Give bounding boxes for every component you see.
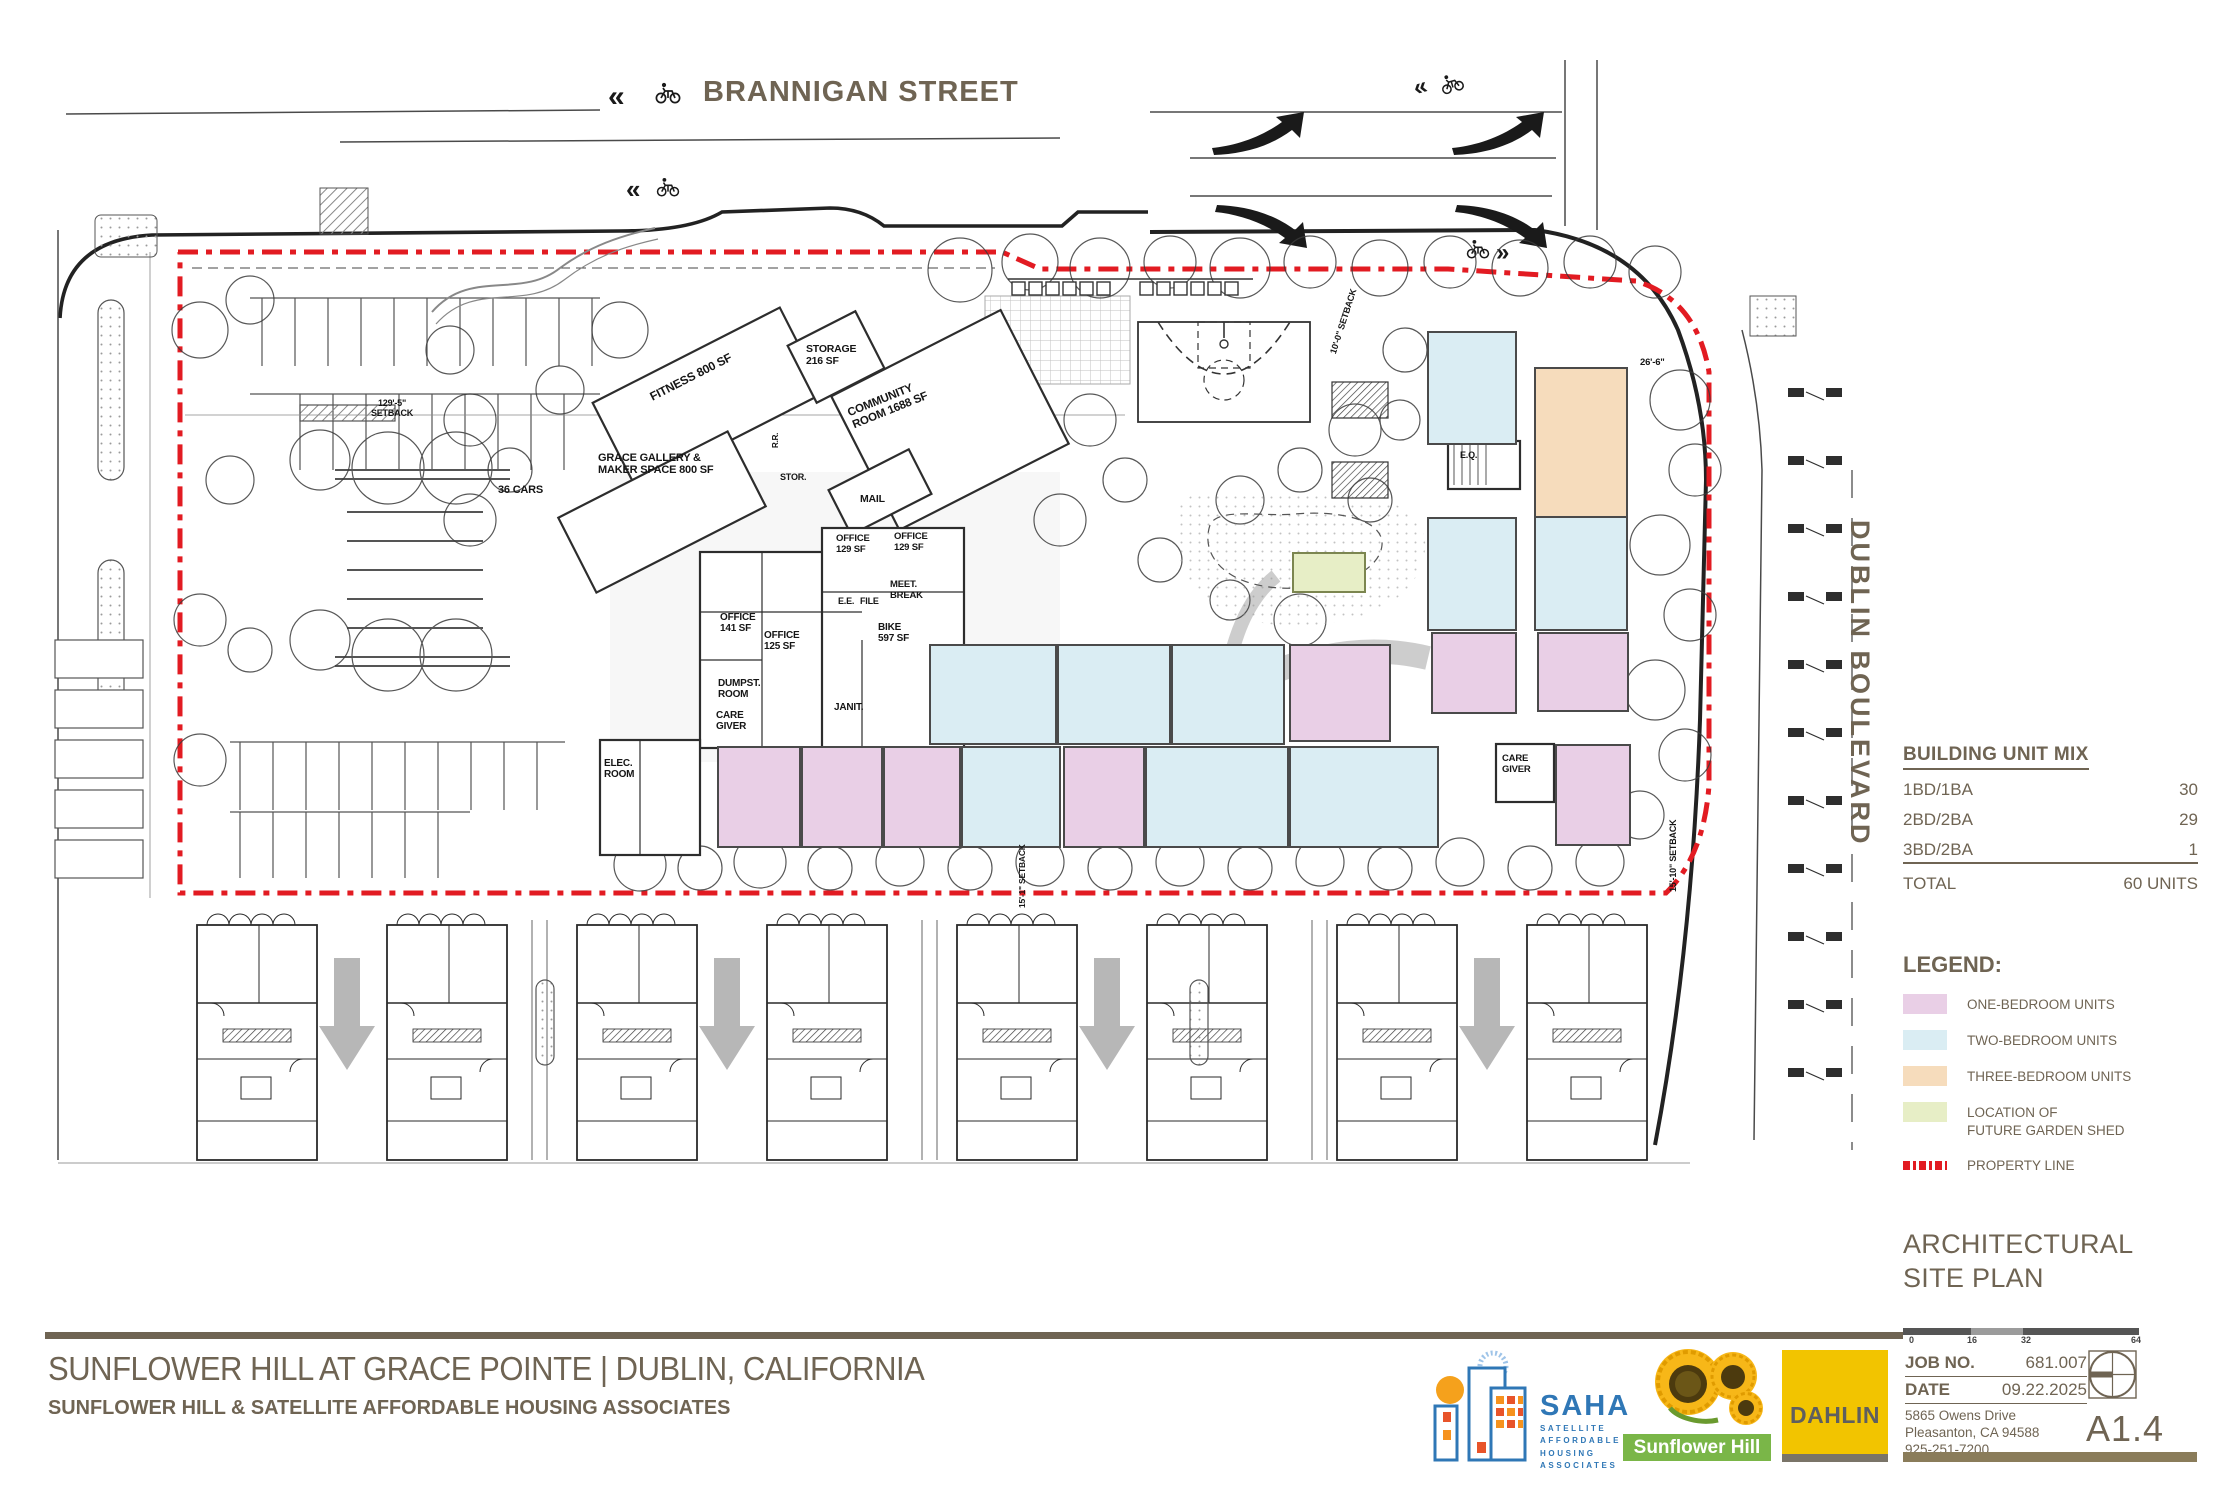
date-value: 09.22.2025 [2002,1380,2087,1400]
site-plan-drawing: « « « » [0,0,2220,1486]
legend: LEGEND: ONE-BEDROOM UNITS TWO-BEDROOM UN… [1903,952,2203,1175]
unit-mix-total-label: TOTAL [1903,874,1956,894]
room-label-office-125: OFFICE 125 SF [764,630,799,652]
dahlin-name: DAHLIN [1790,1402,1880,1429]
street-label-dublin: DUBLIN BOULEVARD [1844,520,1875,847]
two-bedroom-unit [930,645,1056,744]
unit-mix-row: 1BD/1BA 30 [1903,770,2198,800]
title-band-rule [45,1332,1903,1339]
address-line: Pleasanton, CA 94588 [1905,1425,2087,1442]
room-label-grace-gallery: GRACE GALLERY & MAKER SPACE 800 SF [598,452,713,477]
project-title: SUNFLOWER HILL AT GRACE POINTE | DUBLIN,… [48,1350,924,1388]
dim-setback-bottom: 15'-1" SETBACK [1018,844,1028,908]
titleblock-bar [1903,1452,2197,1462]
unit-mix-row-value: 30 [2179,780,2198,800]
legend-item: PROPERTY LINE [1903,1155,2203,1175]
svg-text:«: « [1410,72,1430,102]
one-bedroom-unit [1432,633,1516,713]
sunflower-hill-name: Sunflower Hill [1634,1437,1761,1459]
date-label: DATE [1905,1380,1950,1400]
north-arrow-icon [2088,1350,2138,1400]
two-bedroom-unit [1172,645,1284,744]
garden-shed-swatch [1903,1102,1947,1122]
unit-mix-title: BUILDING UNIT MIX [1903,744,2089,770]
saha-logo-icon [1433,1350,1533,1468]
legend-item-label: TWO-BEDROOM UNITS [1967,1030,2117,1050]
picnic-table [1332,462,1388,498]
sheet-title-line2: SITE PLAN [1903,1262,2133,1296]
one-bedroom-unit [884,747,960,847]
room-label-eq: E.Q. [1460,450,1477,460]
two-bedroom-unit [1058,645,1170,744]
svg-text:«: « [626,174,640,204]
dahlin-logo-bar [1782,1454,1888,1462]
legend-item: ONE-BEDROOM UNITS [1903,994,2203,1014]
divider [1905,1403,2087,1404]
scale-tick: 16 [1967,1335,1977,1345]
two-bedroom-unit [1535,517,1627,630]
unit-mix-row: 3BD/2BA 1 [1903,830,2198,860]
job-no-value: 681.007 [2026,1353,2087,1373]
one-bedroom-unit [1538,633,1628,711]
room-label-office-129b: OFFICE 129 SF [894,532,928,553]
room-label-janitor: JANIT. [834,702,863,713]
driveway-arrow-icon [699,958,755,1070]
two-bedroom-unit [1428,518,1516,630]
driveway-arrow-icon [1459,958,1515,1070]
room-label-rr: R.R. [772,433,781,448]
future-garden-shed [1293,553,1365,592]
saha-sub-line: AFFORDABLE [1540,1435,1630,1447]
one-bedroom-unit [1556,745,1630,845]
room-label-meet-break: MEET. BREAK [890,580,923,601]
room-label-care-giver-left: CARE GIVER [716,710,746,732]
scale-seg [1971,1328,2023,1335]
driveway-arrow-icon [319,958,375,1070]
saha-sub-line: SATELLITE [1540,1423,1630,1435]
room-label-storage: STORAGE 216 SF [806,344,856,368]
job-no-label: JOB NO. [1905,1353,1975,1373]
room-label-ee: E.E. [838,596,854,606]
legend-item: TWO-BEDROOM UNITS [1903,1030,2203,1050]
picnic-table [1332,382,1388,418]
unit-mix-row-value: 1 [2189,840,2198,860]
room-label-care-giver-right: CARE GIVER [1502,754,1531,775]
project-client: SUNFLOWER HILL & SATELLITE AFFORDABLE HO… [48,1396,730,1420]
address-line: 5865 Owens Drive [1905,1408,2087,1425]
room-label-bike: BIKE 597 SF [878,622,909,644]
two-bedroom-unit [1146,747,1288,847]
driveway-arrow-icon [1079,958,1135,1070]
unit-mix-row-label: 2BD/2BA [1903,810,1973,830]
one-bedroom-swatch [1903,994,1947,1014]
adjacent-buildings [197,914,1647,1160]
legend-title: LEGEND: [1903,952,2203,978]
paving-hatches [95,188,1796,336]
svg-text:«: « [608,80,625,113]
two-bedroom-swatch [1903,1030,1947,1050]
lane-merge-arrow-icons [1212,112,1547,248]
legend-item-label: PROPERTY LINE [1967,1155,2075,1175]
job-block: JOB NO. 681.007 DATE 09.22.2025 5865 Owe… [1905,1350,2087,1459]
pergola [1008,279,1253,295]
one-bedroom-unit [802,747,882,847]
two-bedroom-unit [962,747,1060,847]
basketball-court [1138,322,1310,422]
room-label-elec-room: ELEC. ROOM [604,758,634,780]
unit-mix-row: 2BD/2BA 29 [1903,800,2198,830]
sheet-title-line1: ARCHITECTURAL [1903,1228,2133,1262]
two-bedroom-unit [1290,747,1438,847]
legend-item-label: ONE-BEDROOM UNITS [1967,994,2115,1014]
dim-setback-right: 15'-10" SETBACK [1668,820,1678,892]
room-label-office-129a: OFFICE 129 SF [836,534,870,555]
sunflower-hill-logo-text: Sunflower Hill [1623,1434,1771,1461]
scale-seg [1903,1328,1971,1335]
dim-setback-129: 129'-5" SETBACK [350,398,434,418]
room-label-stor: STOR. [780,472,806,482]
saha-sub-line: ASSOCIATES [1540,1460,1630,1472]
one-bedroom-unit [1290,645,1390,741]
sheet-title: ARCHITECTURAL SITE PLAN [1903,1228,2133,1296]
room-label-dumpster-room: DUMPST. ROOM [718,678,761,700]
one-bedroom-unit [718,747,800,847]
legend-item: THREE-BEDROOM UNITS [1903,1066,2203,1086]
saha-name: SAHA [1540,1390,1630,1423]
room-label-office-141: OFFICE 141 SF [720,612,755,634]
legend-item-label: THREE-BEDROOM UNITS [1967,1066,2131,1086]
room-label-file: FILE [860,596,879,606]
three-bedroom-unit [1535,368,1627,517]
scale-tick: 0 [1909,1335,1914,1345]
street-label-brannigan: BRANNIGAN STREET [703,76,1019,109]
architectural-site-plan-sheet: « « « » [0,0,2220,1486]
dahlin-logo: DAHLIN [1782,1350,1888,1454]
sunflower-hill-logo-icon [1640,1346,1775,1441]
scale-tick: 64 [2131,1335,2141,1345]
unit-mix-total-row: TOTAL 60 UNITS [1903,864,2198,894]
unit-mix-row-label: 3BD/2BA [1903,840,1973,860]
legend-item-label: LOCATION OF FUTURE GARDEN SHED [1967,1102,2125,1139]
saha-logo-text: SAHA SATELLITE AFFORDABLE HOUSING ASSOCI… [1540,1390,1630,1473]
scale-seg [2023,1328,2139,1335]
saha-sub-line: HOUSING [1540,1448,1630,1460]
one-bedroom-unit [1064,747,1144,847]
building-unit-mix: BUILDING UNIT MIX 1BD/1BA 30 2BD/2BA 29 … [1903,744,2198,894]
boulevard-hatch-marks [1788,388,1842,1080]
sheet-number: A1.4 [2086,1408,2164,1450]
left-edge-site-features [55,300,143,878]
parking-count-label: 36 CARS [498,484,543,496]
two-bedroom-unit [1428,332,1516,444]
three-bedroom-swatch [1903,1066,1947,1086]
legend-item: LOCATION OF FUTURE GARDEN SHED [1903,1102,2203,1139]
scale-bar: 0 16 32 64 [1903,1328,2143,1347]
dim-26-6: 26'-6" [1640,358,1665,369]
unit-mix-total-value: 60 UNITS [2123,874,2198,894]
room-label-mail: MAIL [860,494,885,506]
property-line-swatch [1903,1161,1947,1170]
unit-mix-row-value: 29 [2179,810,2198,830]
scale-tick: 32 [2021,1335,2031,1345]
unit-mix-row-label: 1BD/1BA [1903,780,1973,800]
